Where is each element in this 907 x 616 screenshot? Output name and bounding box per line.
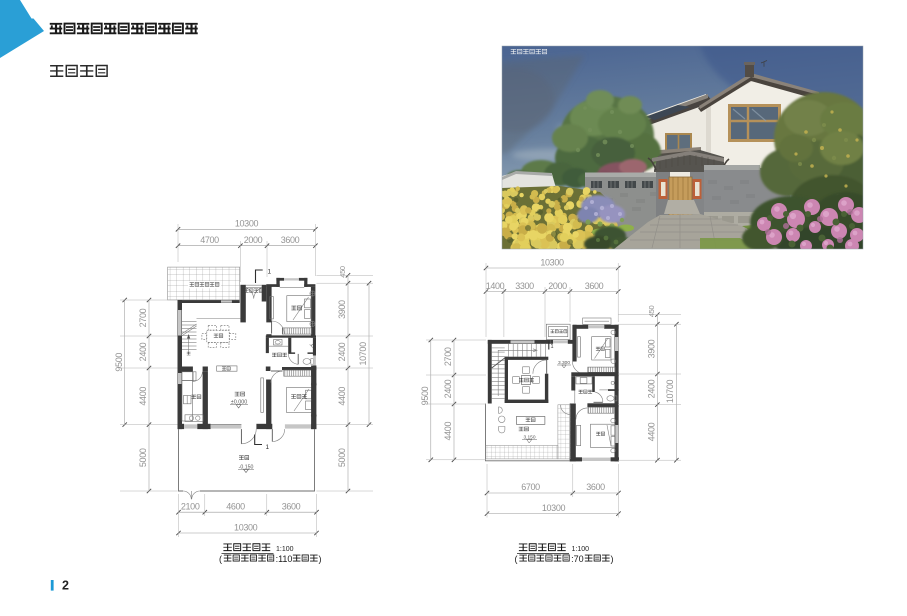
svg-text:10700: 10700	[358, 342, 368, 366]
svg-text:): )	[611, 554, 614, 564]
svg-text:10300: 10300	[542, 503, 566, 513]
svg-text:450: 450	[647, 305, 656, 317]
svg-text:1:100: 1:100	[276, 546, 294, 553]
svg-text:3600: 3600	[281, 235, 300, 245]
svg-text:450: 450	[338, 266, 347, 278]
svg-text:1:100: 1:100	[572, 546, 590, 553]
svg-text:9500: 9500	[114, 353, 124, 372]
svg-text:3300: 3300	[515, 281, 534, 291]
svg-text:5000: 5000	[337, 448, 347, 467]
svg-text:6700: 6700	[521, 482, 540, 492]
svg-text:3600: 3600	[585, 281, 604, 291]
svg-text:4600: 4600	[226, 502, 245, 512]
svg-text:2400: 2400	[443, 379, 453, 398]
svg-text:2: 2	[62, 579, 69, 593]
svg-text:10300: 10300	[234, 522, 258, 532]
svg-text:10300: 10300	[235, 219, 259, 229]
svg-text:(: (	[515, 554, 518, 564]
svg-text:2400: 2400	[646, 379, 656, 398]
svg-text:4400: 4400	[646, 422, 656, 441]
svg-text:1400: 1400	[486, 281, 505, 291]
svg-text:2400: 2400	[337, 342, 347, 361]
svg-text:4400: 4400	[443, 422, 453, 441]
svg-text:2100: 2100	[181, 502, 200, 512]
svg-text:2700: 2700	[443, 347, 453, 366]
svg-text:): )	[319, 554, 322, 564]
svg-text:10300: 10300	[540, 257, 564, 267]
svg-text:4700: 4700	[200, 235, 219, 245]
svg-text:10700: 10700	[665, 380, 675, 404]
svg-text:5000: 5000	[138, 448, 148, 467]
svg-text:1: 1	[266, 444, 270, 451]
svg-text:1: 1	[551, 344, 554, 350]
svg-text:2000: 2000	[244, 235, 263, 245]
svg-text:2700: 2700	[138, 308, 148, 327]
svg-text::70: :70	[571, 554, 584, 564]
svg-text:4400: 4400	[337, 387, 347, 406]
svg-text:4400: 4400	[138, 387, 148, 406]
svg-text:2400: 2400	[138, 342, 148, 361]
svg-text:3900: 3900	[646, 339, 656, 358]
svg-text:3600: 3600	[586, 482, 605, 492]
svg-text:3900: 3900	[337, 300, 347, 319]
svg-text:2000: 2000	[548, 281, 567, 291]
svg-text:1: 1	[268, 269, 272, 276]
svg-text:9500: 9500	[420, 386, 430, 405]
svg-text:3600: 3600	[282, 502, 301, 512]
svg-text::110: :110	[276, 554, 293, 564]
svg-text:(: (	[219, 554, 222, 564]
